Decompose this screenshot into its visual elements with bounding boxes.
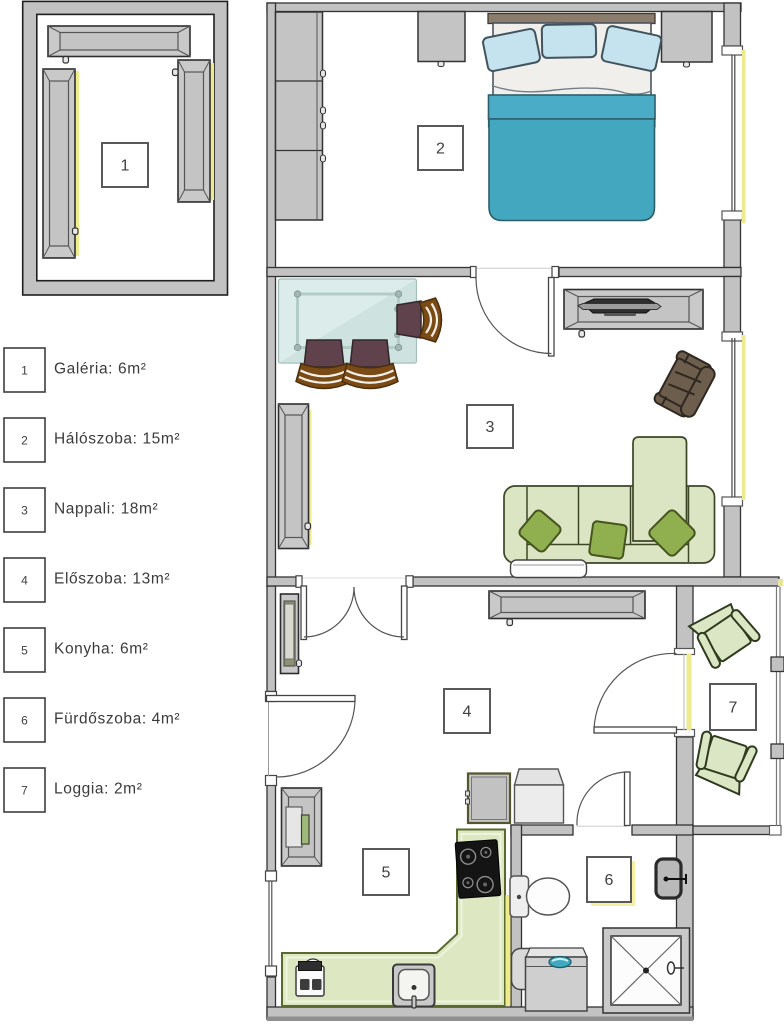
- svg-text:2: 2: [21, 434, 28, 448]
- svg-text:Konyha: 6m²: Konyha: 6m²: [54, 641, 148, 658]
- svg-text:Galéria: 6m²: Galéria: 6m²: [54, 361, 146, 378]
- svg-text:4: 4: [21, 574, 28, 588]
- svg-text:Hálószoba: 15m²: Hálószoba: 15m²: [54, 431, 180, 448]
- svg-text:6: 6: [21, 714, 28, 728]
- svg-text:7: 7: [729, 700, 738, 717]
- svg-text:1: 1: [121, 158, 130, 175]
- svg-text:Előszoba: 13m²: Előszoba: 13m²: [54, 571, 170, 588]
- svg-text:5: 5: [382, 865, 391, 882]
- svg-text:Nappali: 18m²: Nappali: 18m²: [54, 501, 158, 518]
- svg-text:Loggia: 2m²: Loggia: 2m²: [54, 781, 142, 798]
- svg-text:6: 6: [605, 872, 614, 889]
- svg-text:Fürdőszoba: 4m²: Fürdőszoba: 4m²: [54, 711, 180, 728]
- svg-text:7: 7: [21, 784, 28, 798]
- svg-text:4: 4: [463, 704, 472, 721]
- svg-text:3: 3: [486, 419, 495, 436]
- svg-text:5: 5: [21, 644, 28, 658]
- svg-text:3: 3: [21, 504, 28, 518]
- svg-text:1: 1: [21, 364, 28, 378]
- svg-text:2: 2: [436, 141, 445, 158]
